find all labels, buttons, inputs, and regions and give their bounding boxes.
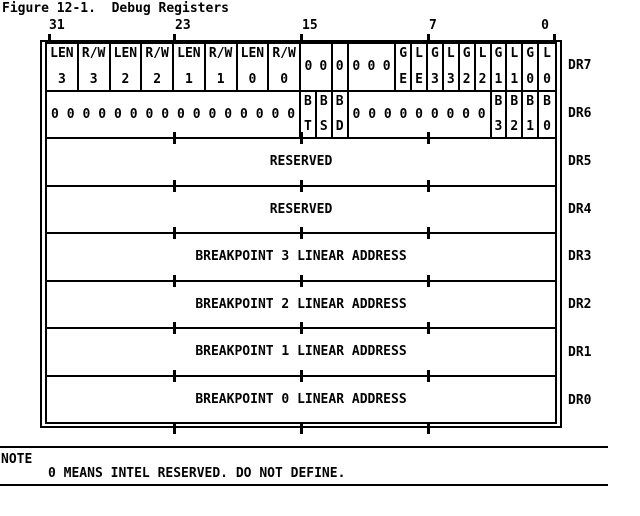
bit-label-15: 15 bbox=[302, 19, 318, 32]
bit-boundary-tick bbox=[300, 132, 303, 144]
field-cell-ge: GE bbox=[396, 44, 412, 90]
zero-bit: 0 bbox=[157, 108, 173, 121]
zero-bit: 0 bbox=[236, 108, 252, 121]
field-bottom-label: 2 bbox=[121, 73, 129, 86]
reserved-zero-cell: 0000000000000000 bbox=[47, 92, 301, 138]
bit-boundary-tick bbox=[427, 322, 430, 334]
field-bottom-label: 0 bbox=[543, 73, 551, 86]
field-bottom-label: D bbox=[336, 120, 344, 133]
field-top-label: B bbox=[320, 95, 328, 108]
zero-bit: 0 bbox=[458, 108, 474, 121]
field-bottom-label: 2 bbox=[153, 73, 161, 86]
field-top-label: R/W bbox=[145, 47, 168, 60]
bit-label-7: 7 bbox=[429, 19, 437, 32]
field-bottom-label: 0 bbox=[526, 73, 534, 86]
zero-bit: 0 bbox=[301, 60, 316, 73]
zero-bit: 0 bbox=[110, 108, 126, 121]
field-cell-b1: B1 bbox=[523, 92, 539, 138]
field-cell-rw1: R/W1 bbox=[206, 44, 238, 90]
field-cell-len0: LEN0 bbox=[238, 44, 270, 90]
field-top-label: LEN bbox=[241, 47, 264, 60]
field-cell-len1: LEN1 bbox=[174, 44, 206, 90]
bit-boundary-tick bbox=[427, 180, 430, 192]
register-content-label: BREAKPOINT 0 LINEAR ADDRESS bbox=[47, 377, 555, 423]
field-top-label: B bbox=[336, 95, 344, 108]
bit-boundary-tick-bottom bbox=[300, 422, 303, 434]
field-top-label: LEN bbox=[50, 47, 73, 60]
register-name-label-dr0: DR0 bbox=[568, 376, 591, 424]
zero-bit: 0 bbox=[443, 108, 459, 121]
register-content-label: RESERVED bbox=[47, 187, 555, 233]
zero-bit: 0 bbox=[364, 60, 379, 73]
note-rule-bottom bbox=[0, 484, 608, 486]
field-top-label: L bbox=[415, 47, 423, 60]
field-bottom-label: 2 bbox=[479, 73, 487, 86]
zero-bit: 0 bbox=[63, 108, 79, 121]
zero-bit: 0 bbox=[189, 108, 205, 121]
field-cell-l1: L1 bbox=[507, 44, 523, 90]
field-cell-l2: L2 bbox=[476, 44, 492, 90]
register-row-dr2: BREAKPOINT 2 LINEAR ADDRESS bbox=[47, 280, 555, 328]
bit-boundary-tick bbox=[173, 227, 176, 239]
register-name-label-dr1: DR1 bbox=[568, 329, 591, 377]
field-cell-g1: G1 bbox=[492, 44, 508, 90]
bit-boundary-tick-0 bbox=[553, 34, 556, 44]
note-text: 0 MEANS INTEL RESERVED. DO NOT DEFINE. bbox=[48, 467, 345, 480]
field-top-label: LEN bbox=[114, 47, 137, 60]
field-bottom-label: 2 bbox=[463, 73, 471, 86]
bit-boundary-tick bbox=[300, 180, 303, 192]
zero-bit: 0 bbox=[333, 60, 347, 73]
field-bottom-label: 3 bbox=[495, 120, 503, 133]
field-top-label: LEN bbox=[177, 47, 200, 60]
field-bottom-label: 3 bbox=[431, 73, 439, 86]
reserved-zero-cell: 0 bbox=[333, 44, 349, 90]
register-name-label-dr7: DR7 bbox=[568, 42, 591, 90]
zero-bit: 0 bbox=[142, 108, 158, 121]
field-top-label: R/W bbox=[209, 47, 232, 60]
zero-bit: 0 bbox=[47, 108, 63, 121]
field-cell-b0: B0 bbox=[539, 92, 555, 138]
field-bottom-label: T bbox=[304, 120, 312, 133]
field-cell-bd: BD bbox=[333, 92, 349, 138]
field-top-label: L bbox=[479, 47, 487, 60]
field-top-label: G bbox=[495, 47, 503, 60]
field-top-label: G bbox=[463, 47, 471, 60]
bit-boundary-tick-31 bbox=[48, 34, 51, 44]
field-cell-b2: B2 bbox=[507, 92, 523, 138]
bit-boundary-tick bbox=[427, 132, 430, 144]
zero-bit: 0 bbox=[79, 108, 95, 121]
bit-boundary-tick bbox=[173, 275, 176, 287]
field-bottom-label: 1 bbox=[510, 73, 518, 86]
zero-bit: 0 bbox=[126, 108, 142, 121]
zero-bit: 0 bbox=[173, 108, 189, 121]
register-name-label-dr5: DR5 bbox=[568, 138, 591, 186]
register-row-dr7: LEN3R/W3LEN2R/W2LEN1R/W1LEN0R/W0000000GE… bbox=[47, 44, 555, 90]
field-cell-bt: BT bbox=[301, 92, 317, 138]
field-bottom-label: 0 bbox=[543, 120, 551, 133]
bit-boundary-tick-15 bbox=[300, 34, 303, 44]
field-top-label: B bbox=[495, 95, 503, 108]
field-bottom-label: 1 bbox=[526, 120, 534, 133]
bit-boundary-tick bbox=[300, 322, 303, 334]
bit-position-labels: 31 23 15 7 0 bbox=[47, 19, 555, 32]
field-top-label: R/W bbox=[272, 47, 295, 60]
register-content-label: BREAKPOINT 3 LINEAR ADDRESS bbox=[47, 234, 555, 280]
bit-boundary-tick bbox=[427, 370, 430, 382]
zero-bit: 0 bbox=[380, 108, 396, 121]
field-bottom-label: 0 bbox=[248, 73, 256, 86]
field-cell-rw2: R/W2 bbox=[142, 44, 174, 90]
bit-boundary-tick-bottom bbox=[427, 422, 430, 434]
field-top-label: L bbox=[543, 47, 551, 60]
register-row-dr5: RESERVED bbox=[47, 137, 555, 185]
bit-boundary-tick bbox=[173, 180, 176, 192]
figure-title: Figure 12-1. Debug Registers bbox=[2, 2, 229, 15]
register-row-dr1: BREAKPOINT 1 LINEAR ADDRESS bbox=[47, 327, 555, 375]
bit-label-0: 0 bbox=[541, 19, 549, 32]
field-top-label: B bbox=[543, 95, 551, 108]
zero-bit: 0 bbox=[268, 108, 284, 121]
field-bottom-label: 2 bbox=[510, 120, 518, 133]
field-cell-g0: G0 bbox=[523, 44, 539, 90]
field-cell-rw0: R/W0 bbox=[269, 44, 301, 90]
field-bottom-label: 1 bbox=[185, 73, 193, 86]
bit-boundary-tick bbox=[427, 227, 430, 239]
zero-bit: 0 bbox=[411, 108, 427, 121]
bit-label-31: 31 bbox=[49, 19, 65, 32]
field-bottom-label: 1 bbox=[495, 73, 503, 86]
zero-bit: 0 bbox=[283, 108, 299, 121]
field-cell-l0: L0 bbox=[539, 44, 555, 90]
field-bottom-label: E bbox=[399, 73, 407, 86]
field-bottom-label: 0 bbox=[280, 73, 288, 86]
zero-bit: 0 bbox=[427, 108, 443, 121]
debug-registers-box: LEN3R/W3LEN2R/W2LEN1R/W1LEN0R/W0000000GE… bbox=[40, 40, 562, 428]
field-top-label: B bbox=[304, 95, 312, 108]
field-cell-rw3: R/W3 bbox=[79, 44, 111, 90]
register-content-label: BREAKPOINT 1 LINEAR ADDRESS bbox=[47, 329, 555, 375]
reserved-zero-cell: 00 bbox=[301, 44, 333, 90]
register-names: DR7DR6DR5DR4DR3DR2DR1DR0 bbox=[568, 42, 591, 424]
bit-boundary-tick bbox=[173, 322, 176, 334]
register-row-dr0: BREAKPOINT 0 LINEAR ADDRESS bbox=[47, 375, 555, 423]
register-row-dr3: BREAKPOINT 3 LINEAR ADDRESS bbox=[47, 232, 555, 280]
note-heading: NOTE bbox=[1, 453, 32, 466]
field-cell-b3: B3 bbox=[492, 92, 508, 138]
field-bottom-label: 1 bbox=[217, 73, 225, 86]
bit-boundary-tick bbox=[300, 275, 303, 287]
register-name-label-dr6: DR6 bbox=[568, 90, 591, 138]
field-top-label: R/W bbox=[82, 47, 105, 60]
bit-boundary-tick bbox=[300, 370, 303, 382]
field-bottom-label: 3 bbox=[447, 73, 455, 86]
field-top-label: G bbox=[526, 47, 534, 60]
field-bottom-label: 3 bbox=[58, 73, 66, 86]
zero-bit: 0 bbox=[364, 108, 380, 121]
zero-bit: 0 bbox=[252, 108, 268, 121]
zero-bit: 0 bbox=[220, 108, 236, 121]
field-cell-g3: G3 bbox=[428, 44, 444, 90]
field-bottom-label: E bbox=[415, 73, 423, 86]
field-cell-l3: L3 bbox=[444, 44, 460, 90]
zero-bit: 0 bbox=[316, 60, 331, 73]
field-cell-len3: LEN3 bbox=[47, 44, 79, 90]
field-top-label: L bbox=[447, 47, 455, 60]
zero-bit: 0 bbox=[349, 60, 364, 73]
field-top-label: B bbox=[510, 95, 518, 108]
bit-boundary-tick bbox=[427, 275, 430, 287]
register-name-label-dr2: DR2 bbox=[568, 281, 591, 329]
bit-boundary-tick bbox=[173, 132, 176, 144]
bit-boundary-tick-7 bbox=[427, 34, 430, 44]
bit-boundary-tick bbox=[300, 227, 303, 239]
register-content-label: RESERVED bbox=[47, 139, 555, 185]
register-content-label: BREAKPOINT 2 LINEAR ADDRESS bbox=[47, 282, 555, 328]
field-top-label: L bbox=[510, 47, 518, 60]
zero-bit: 0 bbox=[94, 108, 110, 121]
field-top-label: G bbox=[431, 47, 439, 60]
zero-bit: 0 bbox=[396, 108, 412, 121]
bit-boundary-tick-23 bbox=[173, 34, 176, 44]
field-cell-len2: LEN2 bbox=[111, 44, 143, 90]
zero-bit: 0 bbox=[379, 60, 394, 73]
field-cell-bs: BS bbox=[317, 92, 333, 138]
register-rows: LEN3R/W3LEN2R/W2LEN1R/W1LEN0R/W0000000GE… bbox=[45, 42, 557, 424]
bit-label-23: 23 bbox=[175, 19, 191, 32]
field-bottom-label: S bbox=[320, 120, 328, 133]
register-name-label-dr3: DR3 bbox=[568, 233, 591, 281]
field-top-label: G bbox=[399, 47, 407, 60]
zero-bit: 0 bbox=[474, 108, 490, 121]
zero-bit: 0 bbox=[205, 108, 221, 121]
bit-boundary-tick bbox=[173, 370, 176, 382]
register-row-dr4: RESERVED bbox=[47, 185, 555, 233]
field-cell-le: LE bbox=[412, 44, 428, 90]
bit-boundary-tick-bottom bbox=[173, 422, 176, 434]
register-row-dr6: 0000000000000000BTBSBD000000000B3B2B1B0 bbox=[47, 90, 555, 138]
register-name-label-dr4: DR4 bbox=[568, 185, 591, 233]
field-top-label: B bbox=[526, 95, 534, 108]
reserved-zero-cell: 000 bbox=[349, 44, 397, 90]
reserved-zero-cell: 000000000 bbox=[349, 92, 492, 138]
zero-bit: 0 bbox=[349, 108, 365, 121]
field-bottom-label: 3 bbox=[90, 73, 98, 86]
note-rule-top bbox=[0, 446, 608, 448]
field-cell-g2: G2 bbox=[460, 44, 476, 90]
